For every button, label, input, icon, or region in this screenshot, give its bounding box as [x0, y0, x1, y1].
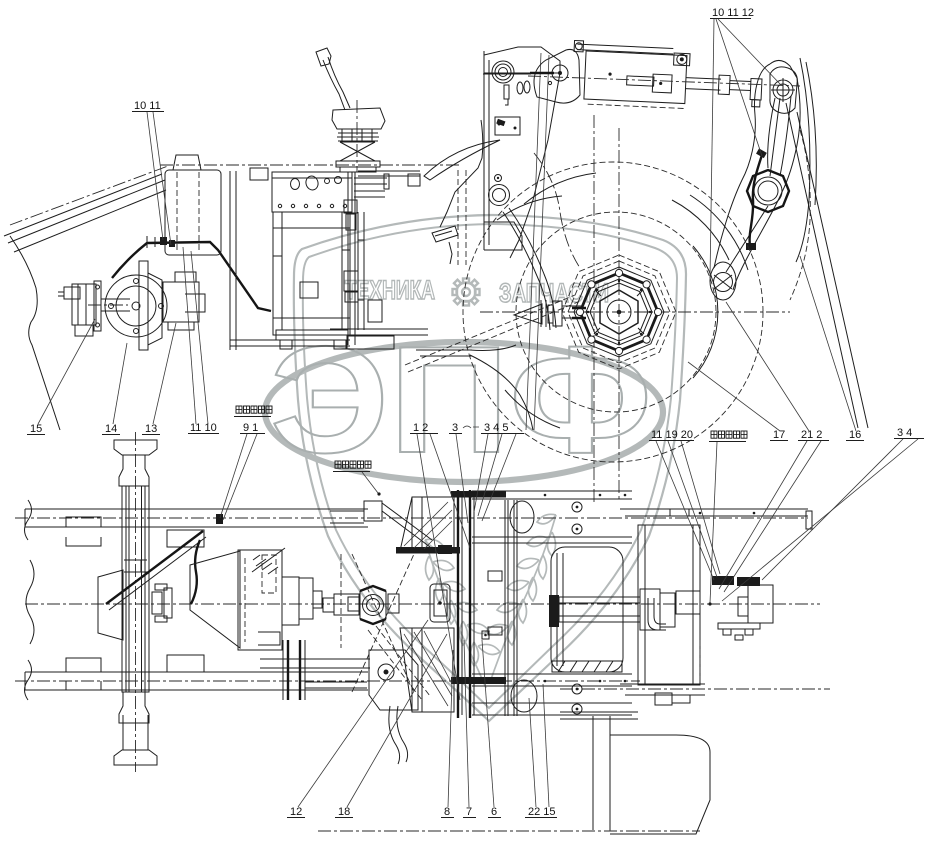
svg-text:10 11: 10 11 — [134, 100, 161, 112]
svg-text:3 4 5: 3 4 5 — [484, 422, 508, 434]
svg-text:15: 15 — [30, 423, 42, 435]
svg-text:6: 6 — [491, 806, 497, 818]
svg-text:9 1: 9 1 — [243, 422, 258, 434]
svg-text:22 15: 22 15 — [528, 806, 556, 818]
svg-text:18: 18 — [338, 806, 350, 818]
svg-text:13: 13 — [145, 423, 157, 435]
svg-text:11 10: 11 10 — [190, 422, 217, 434]
svg-text:21 2: 21 2 — [801, 429, 822, 441]
svg-text:7: 7 — [466, 806, 472, 818]
svg-text:1 2: 1 2 — [413, 422, 428, 434]
svg-text:16: 16 — [849, 429, 861, 441]
svg-text:14: 14 — [105, 423, 117, 435]
svg-text:3 4: 3 4 — [897, 427, 912, 439]
svg-text:8: 8 — [444, 806, 450, 818]
svg-text:11 19 20: 11 19 20 — [651, 429, 693, 441]
svg-text:3: 3 — [452, 422, 458, 434]
svg-text:12: 12 — [290, 806, 302, 818]
svg-text:10 11 12: 10 11 12 — [712, 7, 754, 19]
